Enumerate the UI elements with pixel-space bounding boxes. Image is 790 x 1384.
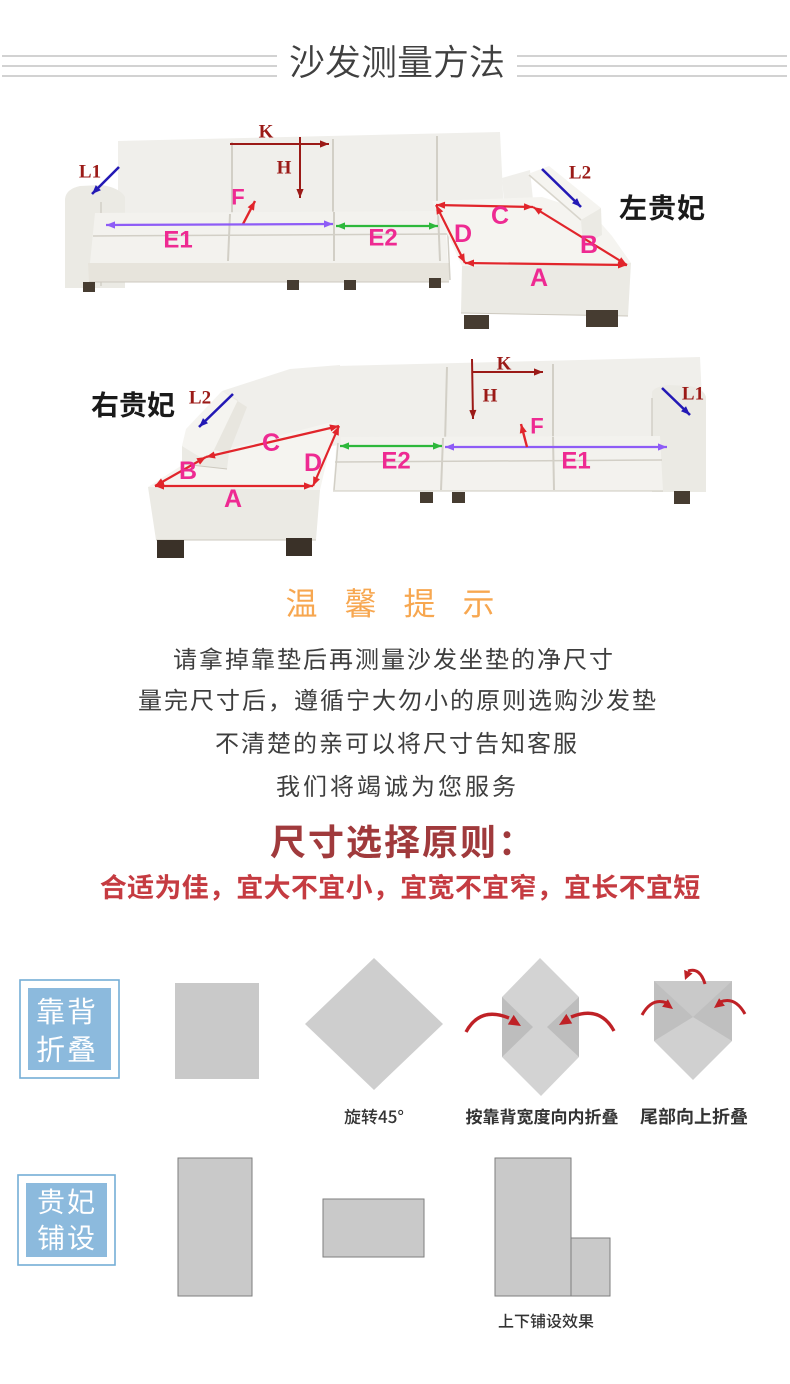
svg-text:K: K [259,122,274,143]
svg-text:E1: E1 [561,447,590,474]
svg-text:E1: E1 [163,226,192,253]
svg-text:B: B [580,231,598,259]
svg-text:L2: L2 [569,163,591,184]
svg-text:A: A [224,485,242,513]
svg-text:H: H [483,386,498,407]
svg-text:H: H [277,158,292,179]
svg-text:L2: L2 [189,388,211,409]
svg-text:D: D [304,449,322,477]
svg-text:F: F [231,185,244,210]
svg-text:K: K [497,354,512,375]
svg-text:B: B [179,457,197,485]
svg-text:L1: L1 [79,162,101,183]
svg-text:E2: E2 [368,224,397,251]
svg-text:C: C [262,429,280,457]
svg-text:C: C [491,202,509,230]
svg-text:D: D [454,220,472,248]
svg-text:E2: E2 [381,447,410,474]
svg-text:L1: L1 [682,384,704,405]
svg-text:F: F [530,414,543,439]
svg-text:A: A [530,264,548,292]
